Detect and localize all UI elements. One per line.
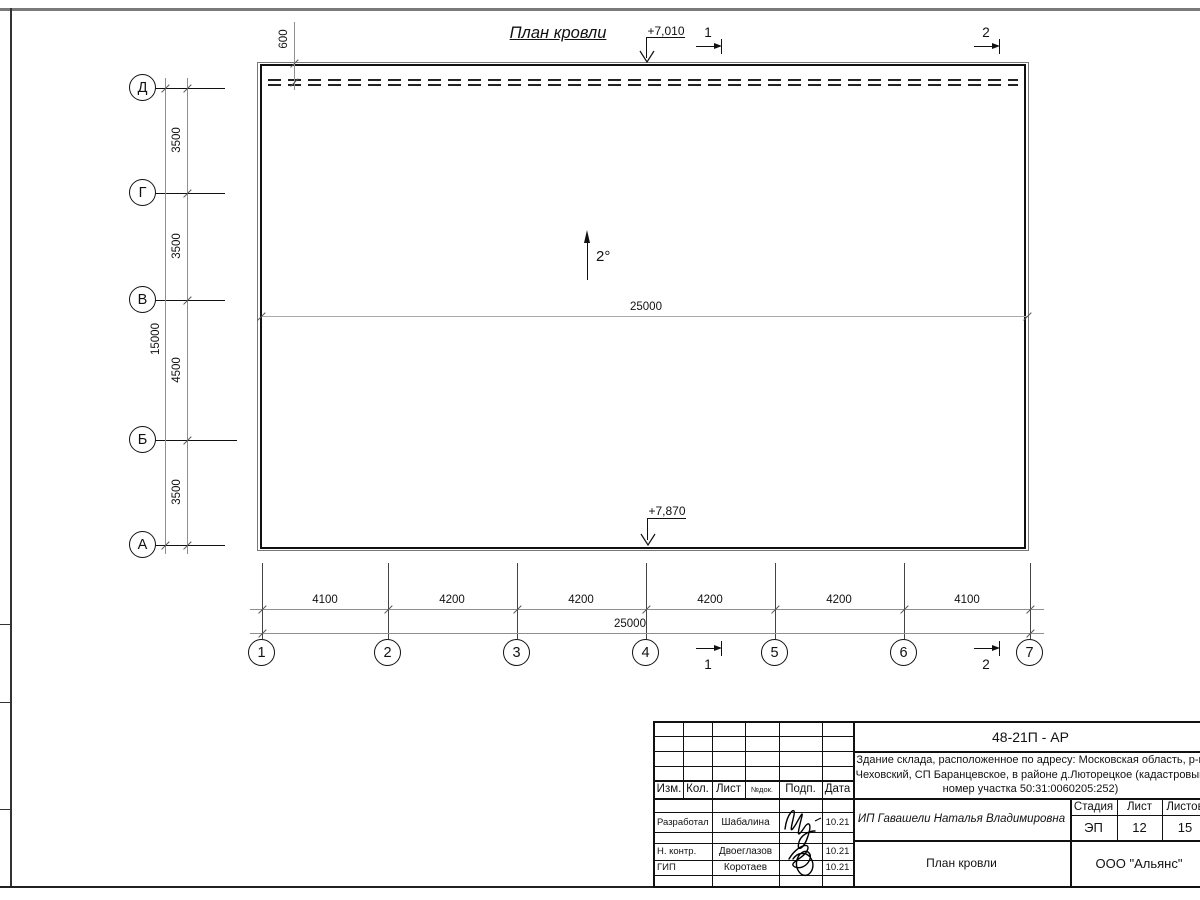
axis-bubble: В [129, 286, 156, 313]
dim-text: 4200 [680, 594, 740, 606]
hidden-edge-dashed-line [268, 79, 1018, 81]
section-mark-arrow [974, 648, 992, 649]
frame-margin-divider [0, 624, 10, 625]
tb-line [655, 751, 853, 752]
elevation-bottom-shelf [647, 518, 686, 519]
axis-line [775, 563, 776, 639]
tb-project-line: Чеховский, СП Баранцевское, в районе д.Л… [853, 768, 1200, 783]
axis-bubble: 4 [632, 639, 659, 666]
tb-sheets-value: 15 [1162, 815, 1200, 840]
tb-date: 10.21 [822, 843, 853, 860]
tb-sheet-label: Лист [1117, 798, 1162, 815]
axis-bubble: 2 [374, 639, 401, 666]
axis-bubble: 5 [761, 639, 788, 666]
tb-sheet-value: 12 [1117, 815, 1162, 840]
section-mark-label: 2 [978, 25, 994, 40]
dim-text: 3500 [171, 118, 183, 162]
slope-arrow-head [584, 230, 590, 243]
tb-stage-label: Стадия [1070, 798, 1117, 815]
dim-text: 4200 [551, 594, 611, 606]
drawing-title: План кровли [498, 24, 618, 43]
tb-header-kol: Кол. [683, 780, 712, 798]
axis-bubble: 6 [890, 639, 917, 666]
tb-sheet-title: План кровли [853, 840, 1070, 886]
slope-label: 2° [596, 248, 610, 265]
tb-project-line: номер участка 50:31:0060205:252) [853, 782, 1200, 797]
dim-text: 4100 [295, 594, 355, 606]
hidden-edge-dashed-line [268, 84, 1018, 86]
axis-bubble: Б [129, 426, 156, 453]
tb-person: Двоеглазов [712, 843, 779, 860]
elevation-top-arrow-icon [638, 50, 656, 63]
slope-arrow-line [587, 242, 588, 280]
ridge-dim-text: 25000 [616, 301, 676, 313]
tb-line [655, 875, 853, 876]
axis-line [388, 563, 389, 639]
axis-line [262, 563, 263, 639]
dim-line-bottom-total [250, 633, 1044, 634]
tb-date: 10.21 [822, 812, 853, 832]
dim-text: 15000 [150, 317, 162, 361]
tb-sheets-label: Листов [1162, 798, 1200, 815]
frame-left-line [10, 8, 12, 888]
section-mark-bar [721, 39, 722, 54]
dim-text: 600 [278, 17, 290, 61]
section-mark-label: 1 [700, 25, 716, 40]
dim-text: 3500 [171, 224, 183, 268]
axis-bubble: Д [129, 74, 156, 101]
dim-text: 3500 [171, 470, 183, 514]
tb-stage-value: ЭП [1070, 815, 1117, 840]
tb-project-name: Здание склада, расположенное по адресу: … [853, 753, 1200, 798]
tb-line [655, 766, 853, 767]
tb-doc-number: 48-21П - АР [853, 723, 1200, 751]
tb-role: Н. контр. [657, 843, 712, 860]
axis-bubble: Г [129, 179, 156, 206]
axis-bubble: 3 [503, 639, 530, 666]
title-block: Изм. Кол. Лист №док. Подп. Дата Разработ… [653, 721, 1200, 888]
tb-role: ГИП [657, 860, 712, 875]
dim-line-left-segments [187, 78, 188, 554]
ridge-dim-line [262, 316, 1028, 317]
drawing-sheet: План кровли 25000 2° +7,010 +7,870 1 2 1… [0, 0, 1200, 900]
section-mark-label: 1 [700, 657, 716, 672]
tb-header-izm: Изм. [655, 780, 683, 798]
frame-top-line [0, 8, 1200, 11]
tb-project-line: Здание склада, расположенное по адресу: … [853, 753, 1200, 768]
tb-line [655, 798, 853, 800]
tb-client: ИП Гавашели Наталья Владимировна [853, 798, 1070, 840]
section-mark-bar [999, 641, 1000, 656]
section-mark-bar [999, 39, 1000, 54]
elevation-bottom-arrow-icon [639, 533, 657, 546]
axis-bubble: 1 [248, 639, 275, 666]
frame-margin-divider [0, 809, 10, 810]
dim-text: 4500 [171, 348, 183, 392]
tb-header-podp: Подп. [779, 780, 822, 798]
elevation-top-shelf [646, 37, 685, 38]
tb-header-ndok: №док. [745, 780, 779, 798]
elevation-top-text: +7,010 [640, 24, 692, 38]
section-mark-arrow [974, 46, 992, 47]
tb-line [655, 736, 853, 737]
axis-bubble: А [129, 531, 156, 558]
tb-date: 10.21 [822, 860, 853, 875]
tb-person: Коротаев [712, 860, 779, 875]
section-mark-label: 2 [978, 657, 994, 672]
dim-text: 25000 [600, 618, 660, 630]
dim-text: 4100 [937, 594, 997, 606]
tb-header-list: Лист [712, 780, 745, 798]
tb-person: Шабалина [712, 812, 779, 832]
section-mark-arrow [696, 46, 714, 47]
axis-bubble: 7 [1016, 639, 1043, 666]
signature-scribbles [779, 801, 822, 883]
tb-line [655, 832, 853, 833]
axis-line [155, 440, 237, 441]
axis-line [904, 563, 905, 639]
frame-margin-divider [0, 702, 10, 703]
dim-text: 4200 [809, 594, 869, 606]
elevation-bottom-text: +7,870 [641, 504, 693, 518]
axis-line [517, 563, 518, 639]
tb-role: Разработал [657, 812, 712, 832]
tb-header-data: Дата [822, 780, 853, 798]
dim-line-left-total [165, 78, 166, 554]
dim-text: 4200 [422, 594, 482, 606]
section-mark-arrow [696, 648, 714, 649]
tb-company: ООО "Альянс" [1070, 840, 1200, 886]
axis-line [1030, 563, 1031, 639]
section-mark-bar [721, 641, 722, 656]
